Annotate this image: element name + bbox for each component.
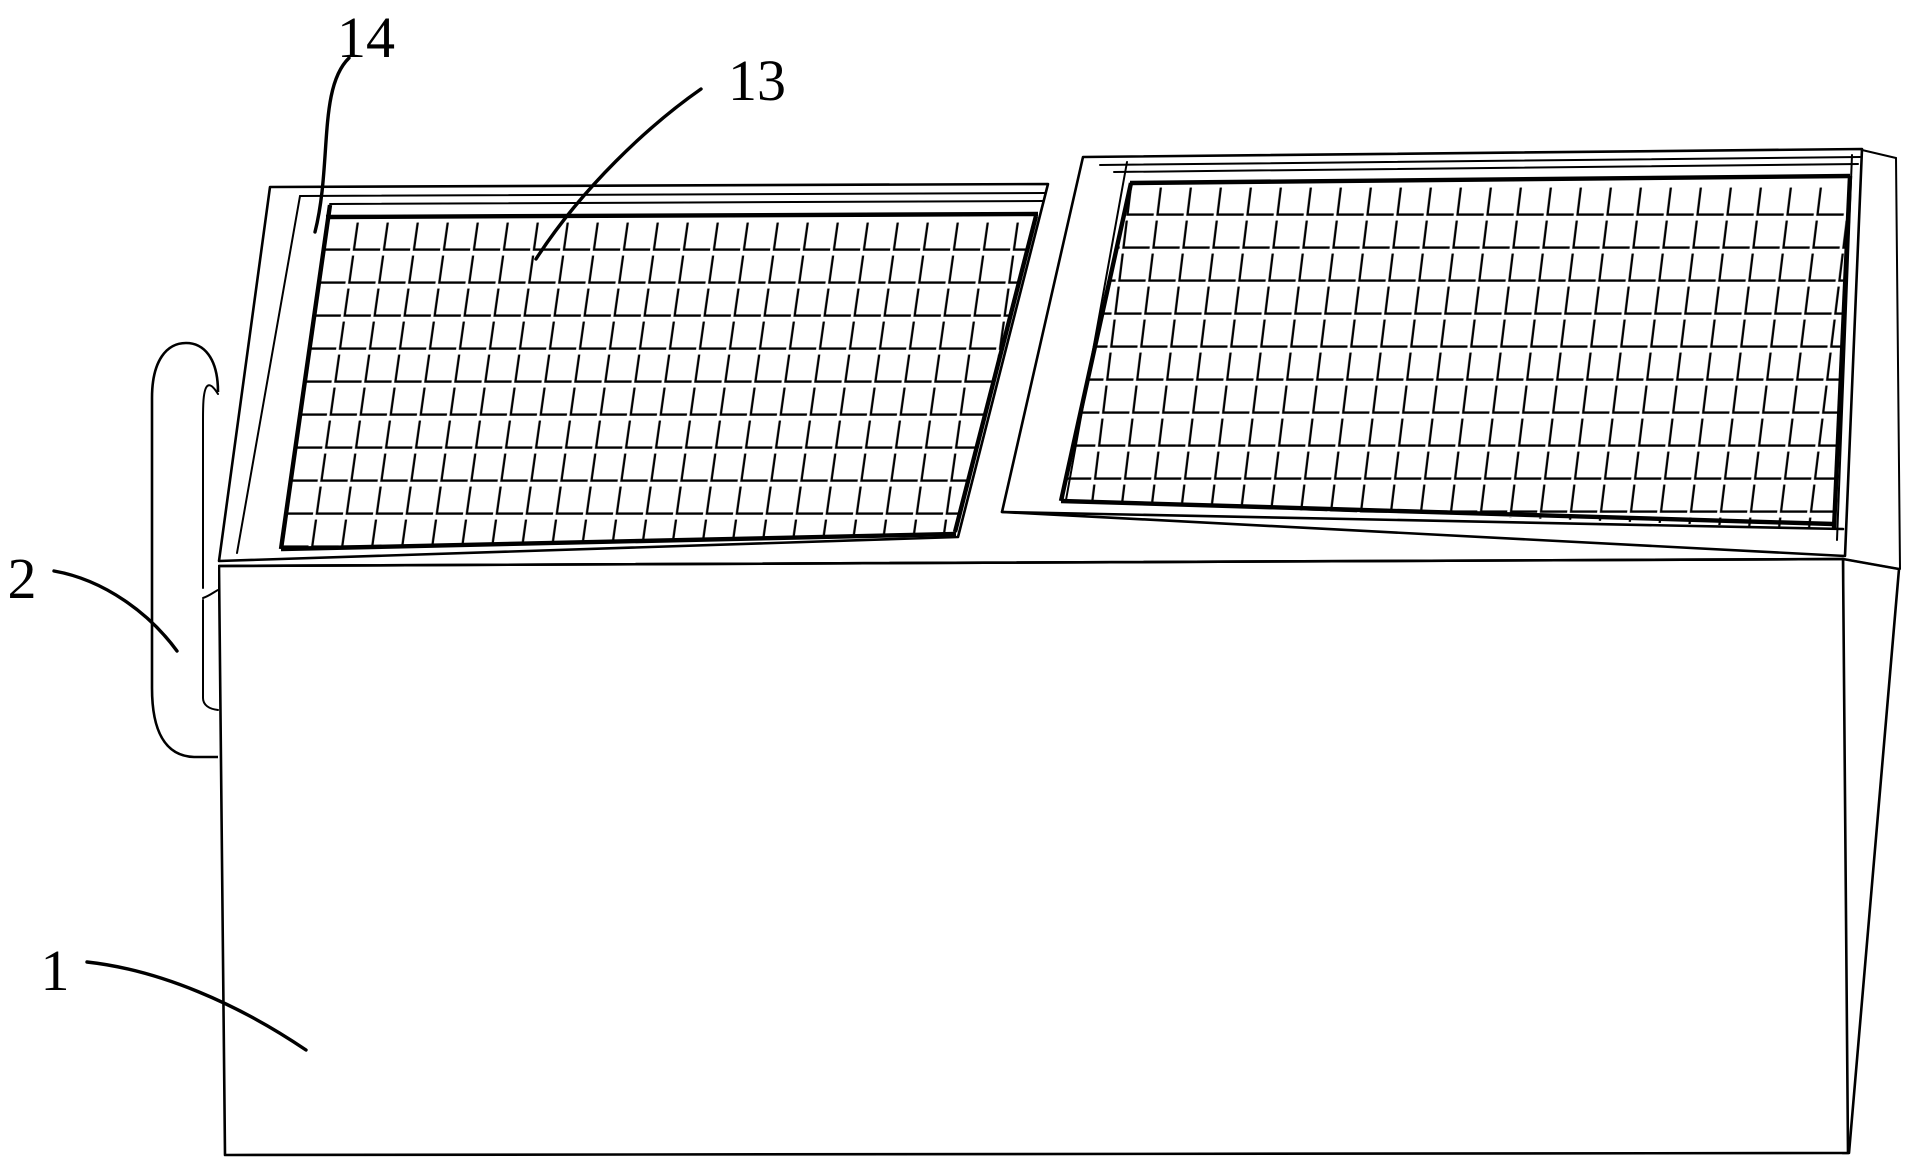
box-back-right-edge [1896, 158, 1900, 569]
ref-num-2: 2 [8, 546, 37, 611]
handle [152, 343, 218, 757]
technical-drawing-canvas: 14 13 2 1 [0, 0, 1913, 1173]
patent-figure: 14 13 2 1 [0, 0, 1913, 1173]
right-screen-panel [1002, 149, 1885, 556]
left-screen-panel [219, 184, 1072, 563]
ref-num-1: 1 [41, 938, 70, 1003]
box-back-rim-corner [1862, 150, 1896, 158]
ref-num-14: 14 [337, 5, 395, 70]
left-mesh-grid [234, 218, 1072, 563]
ref-num-13: 13 [728, 48, 786, 113]
handle-outer-profile [152, 343, 218, 757]
right-mesh-grid [1041, 183, 1885, 543]
box-front-face [219, 559, 1848, 1155]
left-mesh-boundary-top [326, 214, 1038, 217]
box-right-side-face [1843, 559, 1899, 1153]
